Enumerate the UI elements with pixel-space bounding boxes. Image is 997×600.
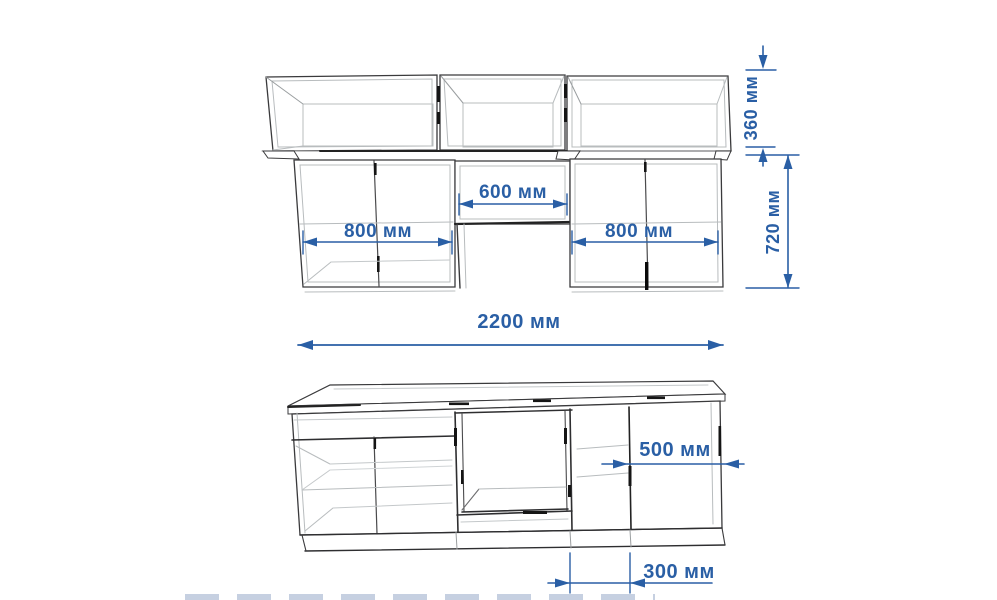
dimension-lower-height: 720 мм <box>746 155 799 288</box>
cropped-text-fragment <box>185 594 655 600</box>
dim-label-600: 600 мм <box>479 182 547 203</box>
door-gap-mark <box>533 400 551 403</box>
arrowhead-right-icon <box>708 340 723 350</box>
cabinet-dimension-drawing: 800 мм 600 мм 800 мм <box>0 0 997 600</box>
dim-label-300: 300 мм <box>643 561 715 583</box>
dimension-upper-height: 360 мм <box>741 46 776 166</box>
arrowhead-up-icon <box>784 155 793 169</box>
dim-label-720: 720 мм <box>763 190 783 255</box>
dim-label-2200: 2200 мм <box>477 311 560 333</box>
dimension-total-width: 2200 мм <box>298 311 723 350</box>
base-cabinet-body <box>292 401 722 535</box>
door-gap-mark <box>449 403 469 406</box>
door-gap-mark <box>564 84 567 98</box>
dimension-plinth-offset: 300 мм <box>548 553 715 593</box>
arrowhead-down-icon <box>759 55 768 69</box>
door-gap-mark <box>564 108 567 122</box>
dim-label-800-right: 800 мм <box>605 221 673 242</box>
door-gap-mark <box>437 86 440 102</box>
arrowhead-down-icon <box>784 274 793 288</box>
wall-cabinets-row <box>262 75 731 160</box>
door-gap-mark <box>523 511 547 514</box>
base-unit-view: 500 мм 300 мм <box>288 381 744 593</box>
door-gap-mark <box>647 397 665 400</box>
arrowhead-left-icon <box>298 340 313 350</box>
dim-label-500: 500 мм <box>639 439 711 461</box>
door-gap-mark <box>437 112 440 124</box>
drawing-svg: 800 мм 600 мм 800 мм <box>0 0 997 600</box>
arrowhead-left-icon <box>724 460 739 469</box>
elevation-view: 800 мм 600 мм 800 мм <box>262 46 799 350</box>
arrowhead-right-icon <box>555 579 570 588</box>
dim-label-360: 360 мм <box>741 76 761 141</box>
dim-label-800-left: 800 мм <box>344 221 412 242</box>
